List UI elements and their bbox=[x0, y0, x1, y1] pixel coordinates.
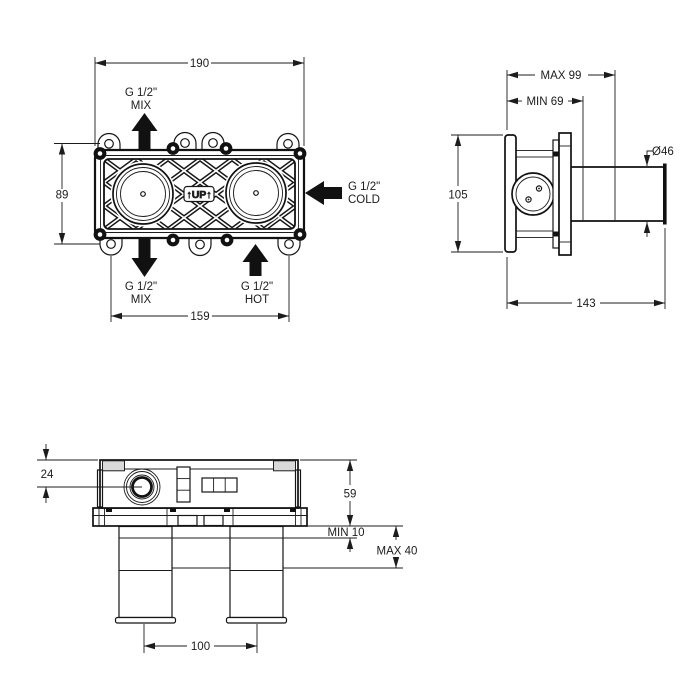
dim-body-depth: 59 bbox=[300, 460, 357, 526]
hot-inlet-arrow bbox=[243, 244, 269, 276]
dim-sleeve-diameter-value: Ø46 bbox=[652, 146, 674, 158]
dim-sleeve-diameter: Ø46 bbox=[647, 146, 674, 237]
valve-port-left bbox=[111, 162, 176, 227]
protection-sleeve bbox=[571, 164, 667, 225]
mix-bottom-size-label: G 1/2" bbox=[125, 281, 157, 293]
hot-label: HOT bbox=[245, 294, 269, 306]
dim-pipe-spacing-value: 100 bbox=[191, 641, 210, 653]
side-view: MAX 99 MIN 69 105 143 Ø46 bbox=[448, 70, 673, 310]
front-view: ↑UP↑ G 1/2" MIX G 1/2" MIX G 1/2" HOT G … bbox=[54, 57, 380, 323]
housing-box bbox=[98, 460, 301, 508]
dim-plaster-min: MIN 10 bbox=[327, 527, 364, 552]
mix-bottom-label: MIX bbox=[131, 294, 152, 306]
sleeve-end-cap bbox=[663, 164, 667, 225]
bracket-bottom bbox=[516, 231, 553, 238]
connection-pipe-left bbox=[116, 527, 176, 624]
dim-port-offset-value: 24 bbox=[41, 469, 54, 481]
dim-height-89: 89 bbox=[54, 144, 100, 245]
mix-outlet-top-arrow bbox=[132, 113, 158, 149]
mix-outlet-bottom-arrow bbox=[132, 239, 158, 277]
dim-width-value: 190 bbox=[190, 58, 209, 70]
hot-size-label: G 1/2" bbox=[241, 281, 273, 293]
dim-depth-max-value: MAX 99 bbox=[541, 70, 582, 82]
dim-plaster-min-value: MIN 10 bbox=[327, 527, 364, 539]
dim-plaster-max: MAX 40 bbox=[377, 526, 418, 568]
mounting-plate-side bbox=[553, 133, 571, 255]
cold-size-label: G 1/2" bbox=[348, 181, 380, 193]
dim-hole-spacing-value: 159 bbox=[190, 311, 209, 323]
dim-body-depth-value: 59 bbox=[344, 489, 357, 501]
mix-top-label: MIX bbox=[131, 100, 152, 112]
installation-drawing: ↑UP↑ G 1/2" MIX G 1/2" MIX G 1/2" HOT G … bbox=[0, 0, 700, 700]
up-marking-text: ↑UP↑ bbox=[186, 189, 211, 201]
bracket-top bbox=[516, 151, 553, 158]
mix-top-size-label: G 1/2" bbox=[125, 87, 157, 99]
dim-width-190: 190 bbox=[95, 57, 304, 146]
dim-pipe-spacing: 100 bbox=[144, 624, 257, 653]
dim-depth-total: 143 bbox=[507, 228, 665, 310]
technical-drawing-page: ↑UP↑ G 1/2" MIX G 1/2" MIX G 1/2" HOT G … bbox=[0, 0, 700, 700]
dim-side-height: 105 bbox=[448, 135, 503, 252]
valve-face bbox=[512, 173, 554, 215]
cold-inlet-arrow bbox=[305, 181, 342, 205]
dim-depth-min-value: MIN 69 bbox=[526, 96, 563, 108]
cold-label: COLD bbox=[348, 194, 380, 206]
bottom-view: 24 59 MIN 10 MAX 40 100 bbox=[37, 444, 417, 653]
connection-pipe-right bbox=[227, 527, 287, 624]
dim-height-value: 89 bbox=[56, 190, 69, 202]
dim-plaster-max-value: MAX 40 bbox=[377, 546, 418, 558]
dim-side-height-value: 105 bbox=[448, 190, 467, 202]
mounting-plate-bottom bbox=[93, 508, 307, 527]
dim-depth-total-value: 143 bbox=[576, 298, 595, 310]
valve-port-right bbox=[224, 161, 289, 226]
